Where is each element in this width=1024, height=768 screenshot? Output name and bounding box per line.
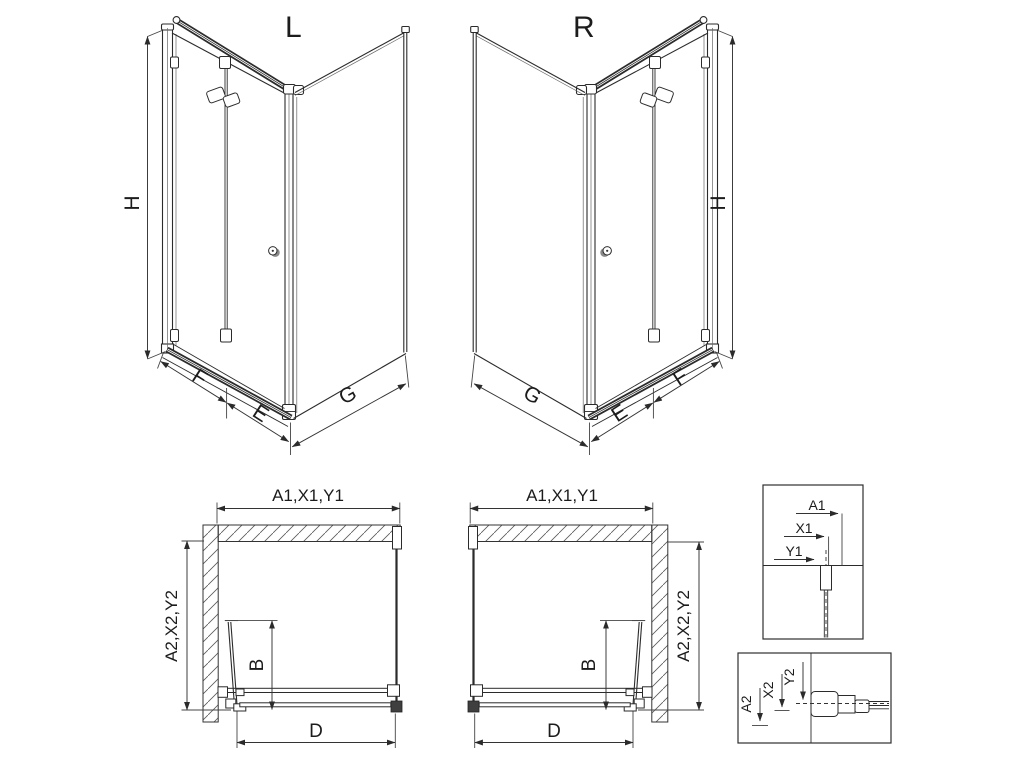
wall-pivot-bracket	[218, 687, 228, 698]
iso-left-height-label: H	[121, 195, 144, 210]
iso-right-height-label: H	[707, 195, 730, 210]
door-hinge-top	[220, 57, 231, 69]
detail-top-dim-x1: X1	[795, 520, 812, 536]
plan-right-entry-dim-label: D	[547, 721, 561, 742]
plan-right-side-dim-label: A2,X2,Y2	[674, 590, 693, 662]
plan-right-side-wall	[652, 525, 668, 722]
plan-right-top-wall	[470, 525, 652, 542]
detail-bottom-dim-a2: A2	[738, 695, 754, 712]
technical-diagram-canvas: L H F E G R H F E G	[0, 0, 1024, 768]
glass-wall-profile	[393, 527, 402, 550]
detail-bottom-glass-clamp	[855, 700, 869, 713]
detail-bottom-wall-profile	[811, 692, 838, 717]
detail-bottom-profile-insert	[838, 696, 855, 714]
rail-end-cap	[173, 17, 180, 24]
shower-enclosure-diagram: L H F E G R H F E G	[0, 0, 1024, 768]
front-threshold-profile	[240, 703, 391, 707]
iso-left-label: L	[285, 11, 302, 44]
detail-bottom-dim-x2: X2	[760, 681, 776, 698]
plan-left-entry-dim-label: D	[309, 721, 323, 742]
plan-right-top-dim-label: A1,X1,Y1	[526, 486, 598, 505]
detail-top-dim-y1: Y1	[785, 543, 802, 559]
glass-floor-fitting	[391, 701, 402, 712]
door-hinge-bottom	[221, 329, 232, 342]
detail-top-wall-profile	[821, 566, 832, 591]
plan-left-top-wall	[218, 525, 400, 542]
plan-left-side-wall	[203, 525, 218, 722]
plan-right-door-dim-label: B	[579, 659, 600, 672]
bar-glass-connector	[388, 685, 400, 697]
plan-left-side-dim-label: A2,X2,Y2	[162, 590, 181, 662]
iso-right-label: R	[573, 11, 595, 44]
detail-bottom-dim-y2: Y2	[781, 668, 797, 685]
detail-top-dim-a1: A1	[808, 497, 825, 513]
plan-left-door-dim-label: B	[247, 659, 268, 672]
plan-left-top-dim-label: A1,X1,Y1	[272, 486, 344, 505]
